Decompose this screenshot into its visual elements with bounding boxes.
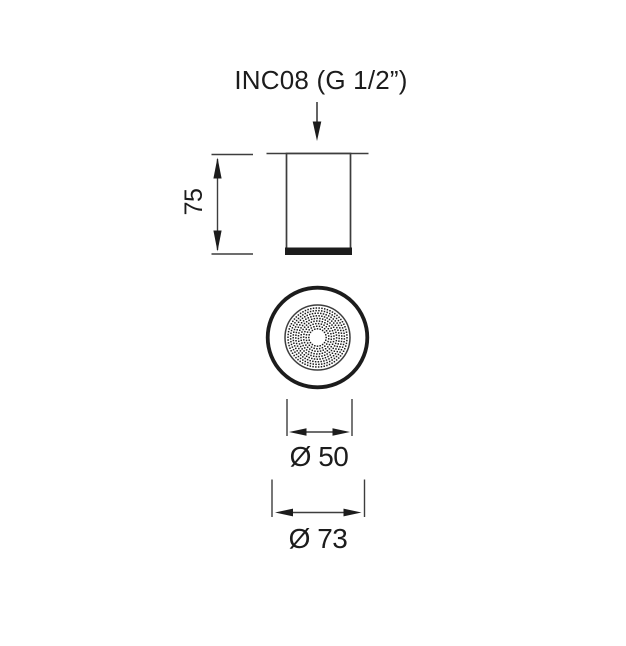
spray-hole-dot bbox=[310, 316, 312, 318]
spray-hole-dot bbox=[308, 317, 310, 319]
dim73-arrowhead-right-icon bbox=[344, 509, 362, 517]
spray-hole-dot bbox=[290, 335, 292, 337]
spray-hole-dot bbox=[342, 327, 344, 329]
spray-hole-dot bbox=[316, 356, 318, 358]
spray-hole-dot bbox=[306, 356, 308, 358]
spray-hole-dot bbox=[305, 313, 307, 315]
spray-hole-dot bbox=[293, 325, 295, 327]
spray-hole-dot bbox=[309, 345, 311, 347]
spray-hole-dot bbox=[308, 337, 310, 339]
spray-hole-dot bbox=[326, 362, 328, 364]
spray-hole-dot bbox=[295, 340, 297, 342]
spray-hole-dot bbox=[334, 316, 336, 318]
spray-hole-dot bbox=[306, 340, 308, 342]
spray-hole-dot bbox=[321, 310, 323, 312]
spray-hole-dot bbox=[289, 328, 291, 330]
spray-hole-dot bbox=[341, 335, 343, 337]
spray-hole-dot bbox=[328, 328, 330, 330]
spray-hole-dot bbox=[314, 318, 316, 320]
spray-hole-dot bbox=[314, 350, 316, 352]
spray-hole-dot bbox=[302, 311, 304, 313]
spray-hole-dot bbox=[308, 351, 310, 353]
spray-hole-dot bbox=[336, 340, 338, 342]
spray-hole-dot bbox=[326, 326, 328, 328]
spray-hole-dot bbox=[330, 333, 332, 335]
spray-hole-dot bbox=[311, 319, 313, 321]
spray-hole-dot bbox=[340, 330, 342, 332]
spray-hole-dot bbox=[306, 349, 308, 351]
spray-hole-dot bbox=[335, 343, 337, 345]
spray-hole-dot bbox=[305, 337, 307, 339]
spray-hole-dot bbox=[295, 357, 297, 359]
spray-hole-dot bbox=[341, 338, 343, 340]
spray-hole-dot bbox=[318, 323, 320, 325]
spray-hole-dot bbox=[345, 329, 347, 331]
spray-hole-dot bbox=[319, 353, 321, 355]
spray-hole-dot bbox=[329, 310, 331, 312]
spray-hole-dot bbox=[337, 351, 339, 353]
spray-hole-dot bbox=[340, 343, 342, 345]
spray-hole-dot bbox=[326, 365, 328, 367]
spray-hole-dot bbox=[339, 346, 341, 348]
spray-hole-dot bbox=[337, 343, 339, 345]
dim73-arrowhead-left-icon bbox=[275, 509, 293, 517]
spray-hole-dot bbox=[319, 326, 321, 328]
spray-hole-dot bbox=[328, 335, 330, 337]
spray-hole-dot bbox=[331, 350, 333, 352]
spray-hole-dot bbox=[332, 311, 334, 313]
spray-hole-dot bbox=[295, 334, 297, 336]
spray-hole-dot bbox=[303, 320, 305, 322]
spray-hole-dot bbox=[334, 350, 336, 352]
spray-hole-dot bbox=[307, 359, 309, 361]
spray-hole-dot bbox=[298, 318, 300, 320]
spray-hole-dot bbox=[336, 322, 338, 324]
spray-hole-dot bbox=[332, 330, 334, 332]
spray-hole-dot bbox=[322, 344, 324, 346]
spray-hole-dot bbox=[333, 327, 335, 329]
spray-hole-dot bbox=[300, 358, 302, 360]
spray-hole-dot bbox=[309, 360, 311, 362]
spray-hole-dot bbox=[294, 322, 296, 324]
spray-hole-dot bbox=[308, 357, 310, 359]
spray-hole-dot bbox=[313, 355, 315, 357]
spray-hole-dot bbox=[296, 320, 298, 322]
inlet-arrowhead-icon bbox=[313, 122, 322, 142]
spray-hole-dot bbox=[292, 327, 294, 329]
spray-hole-dot bbox=[330, 341, 332, 343]
spray-hole-dot bbox=[307, 326, 309, 328]
spray-hole-dot bbox=[290, 350, 292, 352]
spray-hole-dot bbox=[291, 330, 293, 332]
spray-hole-dot bbox=[315, 364, 317, 366]
spray-hole-dot bbox=[346, 340, 348, 342]
spray-hole-dot bbox=[318, 310, 320, 312]
spray-hole-dot bbox=[290, 341, 292, 343]
spray-hole-dot bbox=[292, 337, 294, 339]
spray-hole-dot bbox=[331, 314, 333, 316]
spray-hole-dot bbox=[307, 331, 309, 333]
spray-hole-dot bbox=[313, 326, 315, 328]
spray-hole-dot bbox=[336, 315, 338, 317]
spray-hole-dot bbox=[308, 320, 310, 322]
spray-hole-dot bbox=[326, 353, 328, 355]
dim75-arrowhead-down-icon bbox=[213, 231, 221, 252]
spray-hole-dot bbox=[333, 322, 335, 324]
spray-hole-dot bbox=[346, 337, 348, 339]
spray-hole-dot bbox=[328, 315, 330, 317]
spray-hole-dot bbox=[305, 310, 307, 312]
spray-hole-dot bbox=[341, 341, 343, 343]
cylinder-trim-band bbox=[285, 248, 352, 256]
spray-hole-dot bbox=[293, 355, 295, 357]
spray-hole-dot bbox=[317, 358, 319, 360]
spray-hole-dot bbox=[307, 347, 309, 349]
spray-hole-dot bbox=[336, 356, 338, 358]
spray-hole-dot bbox=[311, 327, 313, 329]
spray-hole-dot bbox=[288, 342, 290, 344]
spray-hole-dot bbox=[316, 348, 318, 350]
spray-hole-dot bbox=[327, 321, 329, 323]
spray-hole-dot bbox=[306, 315, 308, 317]
spray-hole-dot bbox=[329, 319, 331, 321]
spray-hole-dot bbox=[325, 348, 327, 350]
spray-hole-dot bbox=[308, 354, 310, 356]
spray-hole-dot bbox=[325, 314, 327, 316]
spray-hole-dot bbox=[310, 365, 312, 367]
spray-hole-dot bbox=[316, 353, 318, 355]
spray-hole-dot bbox=[326, 330, 328, 332]
spray-hole-dot bbox=[331, 320, 333, 322]
spray-hole-dot bbox=[325, 339, 327, 341]
spray-hole-dot bbox=[295, 337, 297, 339]
spray-hole-dot bbox=[344, 338, 346, 340]
spray-hole-dot bbox=[343, 333, 345, 335]
spray-hole-dot bbox=[322, 318, 324, 320]
spray-hole-dot bbox=[313, 310, 315, 312]
spray-hole-dot bbox=[316, 325, 318, 327]
spray-hole-dot bbox=[331, 357, 333, 359]
spray-hole-dot bbox=[332, 348, 334, 350]
spray-hole-dot bbox=[344, 335, 346, 337]
spray-hole-dot bbox=[304, 354, 306, 356]
spray-hole-dot bbox=[338, 335, 340, 337]
spray-hole-dot bbox=[343, 323, 345, 325]
spray-hole-dot bbox=[298, 332, 300, 334]
spray-hole-dot bbox=[304, 331, 306, 333]
spray-hole-dot bbox=[308, 323, 310, 325]
spray-hole-dot bbox=[315, 323, 317, 325]
spray-hole-dot bbox=[333, 335, 335, 337]
spray-hole-dot bbox=[305, 352, 307, 354]
spray-hole-dot bbox=[327, 350, 329, 352]
spray-hole-dot bbox=[329, 364, 331, 366]
spray-hole-dot bbox=[316, 307, 318, 309]
spray-hole-dot bbox=[320, 313, 322, 315]
spray-hole-dot bbox=[322, 353, 324, 355]
spray-hole-dot bbox=[289, 326, 291, 328]
spray-hole-dot bbox=[293, 334, 295, 336]
spray-hole-dot bbox=[311, 346, 313, 348]
spray-hole-dot bbox=[293, 349, 295, 351]
spray-diameter-dimension bbox=[287, 399, 352, 436]
spray-hole-dot bbox=[315, 361, 317, 363]
spray-hole-dot bbox=[312, 330, 314, 332]
spray-hole-dot bbox=[330, 317, 332, 319]
spray-hole-dot bbox=[336, 318, 338, 320]
spray-hole-dot bbox=[338, 338, 340, 340]
spray-hole-dot bbox=[321, 315, 323, 317]
spray-hole-dot bbox=[329, 313, 331, 315]
spray-hole-dot bbox=[318, 364, 320, 366]
spray-hole-dot bbox=[298, 341, 300, 343]
spray-hole-dot bbox=[295, 326, 297, 328]
spray-hole-dot bbox=[329, 322, 331, 324]
spray-hole-dot bbox=[316, 315, 318, 317]
spray-hole-dot bbox=[287, 336, 289, 338]
spray-hole-dot bbox=[331, 324, 333, 326]
spray-hole-dot bbox=[313, 308, 315, 310]
spray-hole-dot bbox=[302, 329, 304, 331]
spray-hole-dot bbox=[322, 330, 324, 332]
spray-hole-dot bbox=[334, 313, 336, 315]
spray-hole-dot bbox=[310, 332, 312, 334]
spray-hole-dot bbox=[292, 352, 294, 354]
spray-hole-dot bbox=[288, 345, 290, 347]
spray-hole-dot bbox=[294, 318, 296, 320]
spray-hole-dot bbox=[307, 309, 309, 311]
spray-hole-dot bbox=[336, 327, 338, 329]
dim50-arrowhead-left-icon bbox=[289, 428, 307, 435]
spray-hole-dot bbox=[331, 339, 333, 341]
spray-hole-dot bbox=[305, 318, 307, 320]
spray-hole-dot bbox=[311, 358, 313, 360]
spray-hole-dot bbox=[312, 313, 314, 315]
spray-hole-dot bbox=[296, 354, 298, 356]
spray-hole-dot bbox=[305, 344, 307, 346]
spray-hole-dot bbox=[329, 361, 331, 363]
spray-hole-dot bbox=[338, 332, 340, 334]
spray-hole-dot bbox=[291, 323, 293, 325]
spray-hole-dot bbox=[291, 344, 293, 346]
height-dimension bbox=[212, 155, 254, 255]
spray-hole-dot bbox=[324, 308, 326, 310]
spray-hole-dot bbox=[321, 366, 323, 368]
spray-hole-dot bbox=[327, 356, 329, 358]
spray-hole-dot bbox=[308, 339, 310, 341]
spray-hole-dot bbox=[304, 363, 306, 365]
spray-hole-dot bbox=[325, 334, 327, 336]
side-view bbox=[267, 154, 369, 256]
spray-hole-dot bbox=[302, 314, 304, 316]
spray-hole-dot bbox=[319, 320, 321, 322]
spray-hole-dot bbox=[341, 332, 343, 334]
spray-hole-dot bbox=[303, 336, 305, 338]
spray-hole-dot bbox=[312, 361, 314, 363]
spray-hole-dot bbox=[339, 327, 341, 329]
spray-hole-dot bbox=[307, 362, 309, 364]
spray-hole-dot bbox=[301, 331, 303, 333]
spray-hole-dot bbox=[327, 309, 329, 311]
spray-hole-dot bbox=[296, 324, 298, 326]
spray-hole-dot bbox=[342, 321, 344, 323]
spray-hole-dot bbox=[294, 329, 296, 331]
spray-hole-dot bbox=[338, 357, 340, 359]
spray-hole-dot bbox=[330, 346, 332, 348]
spray-hole-dot bbox=[295, 348, 297, 350]
spray-hole-dot bbox=[296, 343, 298, 345]
spray-hole-dot bbox=[292, 321, 294, 323]
spray-hole-dot bbox=[309, 348, 311, 350]
spray-hole-dot bbox=[322, 321, 324, 323]
spray-hole-dot bbox=[319, 345, 321, 347]
spray-hole-dot bbox=[296, 316, 298, 318]
spray-hole-dot bbox=[314, 328, 316, 330]
spray-hole-dot bbox=[338, 354, 340, 356]
spray-hole-dot bbox=[304, 323, 306, 325]
spray-hole-dot bbox=[310, 308, 312, 310]
spray-hole-dot bbox=[324, 354, 326, 356]
spray-hole-dot bbox=[341, 325, 343, 327]
spray-hole-dot bbox=[293, 340, 295, 342]
spray-hole-dot bbox=[327, 346, 329, 348]
spray-hole-dot bbox=[298, 352, 300, 354]
spray-hole-dot bbox=[323, 360, 325, 362]
spray-hole-dot bbox=[336, 337, 338, 339]
spray-hole-dot bbox=[299, 343, 301, 345]
spray-hole-dot bbox=[300, 350, 302, 352]
spray-hole-dot bbox=[300, 313, 302, 315]
spray-hole-dot bbox=[317, 345, 319, 347]
spray-hole-dot bbox=[300, 337, 302, 339]
spray-hole-dot bbox=[319, 358, 321, 360]
spray-hole-dot bbox=[300, 319, 302, 321]
bottom-view bbox=[268, 288, 368, 388]
spray-hole-dot bbox=[298, 338, 300, 340]
spray-hole-dot bbox=[310, 363, 312, 365]
spray-hole-dot bbox=[301, 340, 303, 342]
spray-hole-dot bbox=[302, 362, 304, 364]
spray-hole-dot bbox=[308, 329, 310, 331]
spray-hole-dot bbox=[306, 321, 308, 323]
spray-hole-dot bbox=[318, 307, 320, 309]
spray-hole-dot bbox=[323, 324, 325, 326]
spray-hole-dot bbox=[343, 351, 345, 353]
spray-hole-dot bbox=[324, 322, 326, 324]
center-hole bbox=[312, 332, 322, 342]
spray-hole-dot bbox=[328, 338, 330, 340]
spray-hole-dot bbox=[310, 342, 312, 344]
spray-hole-dot bbox=[301, 322, 303, 324]
spray-hole-dot bbox=[296, 332, 298, 334]
spray-hole-dot bbox=[344, 326, 346, 328]
spray-hole-dot bbox=[324, 332, 326, 334]
spray-hole-dot bbox=[324, 311, 326, 313]
spray-hole-dot bbox=[307, 312, 309, 314]
spray-hole-dot bbox=[302, 318, 304, 320]
spray-hole-dot bbox=[312, 366, 314, 368]
spray-hole-dot bbox=[337, 346, 339, 348]
spray-hole-dot bbox=[299, 330, 301, 332]
spray-hole-dot bbox=[331, 336, 333, 338]
spray-hole-dot bbox=[296, 350, 298, 352]
spray-hole-dot bbox=[338, 317, 340, 319]
spray-hole-dot bbox=[303, 334, 305, 336]
spray-hole-dot bbox=[300, 316, 302, 318]
spray-hole-dot bbox=[326, 312, 328, 314]
spray-hole-dot bbox=[313, 353, 315, 355]
spray-hole-dot bbox=[324, 345, 326, 347]
spray-hole-dot bbox=[318, 366, 320, 368]
spray-hole-dot bbox=[300, 346, 302, 348]
spray-hole-dot bbox=[333, 355, 335, 357]
spray-hole-dot bbox=[330, 327, 332, 329]
spray-hole-dot bbox=[298, 314, 300, 316]
spray-hole-dot bbox=[287, 339, 289, 341]
spray-hole-dot bbox=[314, 345, 316, 347]
spray-hole-dot bbox=[326, 317, 328, 319]
spray-hole-dot bbox=[313, 321, 315, 323]
spray-hole-dot bbox=[321, 323, 323, 325]
spray-hole-dot bbox=[324, 328, 326, 330]
spray-hole-dot bbox=[340, 319, 342, 321]
spray-hole-dot bbox=[324, 316, 326, 318]
dim75-arrowhead-up-icon bbox=[213, 158, 221, 179]
spray-hole-dot bbox=[293, 331, 295, 333]
spray-hole-dot bbox=[313, 348, 315, 350]
spray-hole-dot bbox=[337, 329, 339, 331]
spray-hole-dot bbox=[327, 323, 329, 325]
spray-hole-dot bbox=[302, 352, 304, 354]
spray-hole-dot bbox=[315, 366, 317, 368]
spray-hole-dot bbox=[341, 349, 343, 351]
spray-hole-dot bbox=[293, 342, 295, 344]
spray-hole-dot bbox=[312, 324, 314, 326]
spray-hole-dot bbox=[310, 355, 312, 357]
spray-hole-dot bbox=[301, 348, 303, 350]
spray-hole-dot bbox=[299, 324, 301, 326]
spray-hole-dot bbox=[302, 325, 304, 327]
spray-hole-dot bbox=[302, 356, 304, 358]
spray-hole-dot bbox=[319, 328, 321, 330]
spray-hole-dot bbox=[343, 344, 345, 346]
spray-hole-dot bbox=[304, 326, 306, 328]
spray-hole-dot bbox=[308, 334, 310, 336]
spray-hole-dot bbox=[290, 338, 292, 340]
spray-hole-dot bbox=[304, 316, 306, 318]
spray-hole-dot bbox=[321, 355, 323, 357]
spray-hole-dot bbox=[310, 311, 312, 313]
spray-hole-dot bbox=[329, 348, 331, 350]
spray-hole-dot bbox=[303, 339, 305, 341]
height-dimension-label: 75 bbox=[181, 172, 207, 232]
overall-diameter-label: Ø 73 bbox=[258, 524, 378, 553]
spray-hole-dot bbox=[324, 342, 326, 344]
spray-hole-dot bbox=[345, 345, 347, 347]
spray-hole-dot bbox=[302, 359, 304, 361]
spray-hole-dot bbox=[313, 315, 315, 317]
spray-hole-dot bbox=[304, 342, 306, 344]
spray-hole-dot bbox=[309, 314, 311, 316]
spray-hole-dot bbox=[302, 345, 304, 347]
spray-hole-dot bbox=[333, 333, 335, 335]
spray-hole-dot bbox=[331, 362, 333, 364]
spray-hole-dot bbox=[301, 342, 303, 344]
spray-hole-dot bbox=[325, 357, 327, 359]
spray-hole-dot bbox=[324, 351, 326, 353]
spray-hole-dot bbox=[300, 334, 302, 336]
spray-hole-dot bbox=[306, 324, 308, 326]
